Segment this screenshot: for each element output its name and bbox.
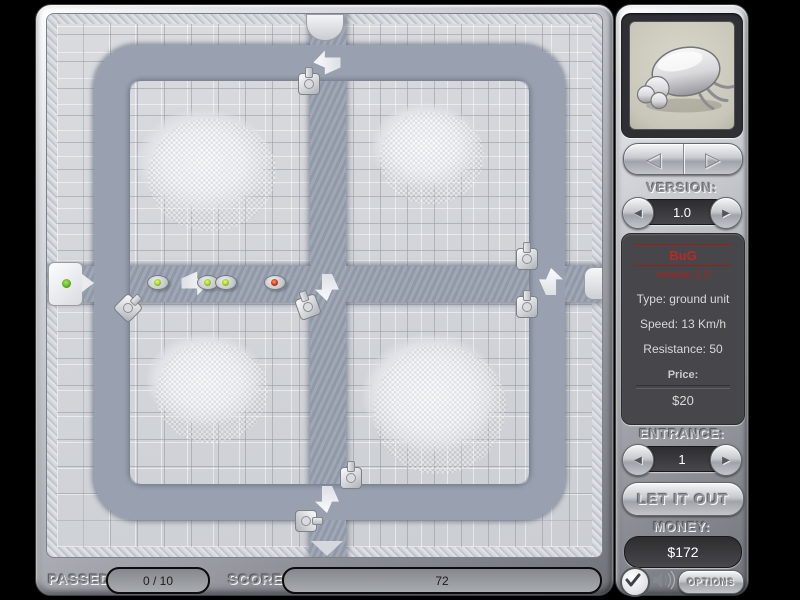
- money-text: $172: [667, 544, 698, 560]
- let-it-out-button[interactable]: LET IT OUT: [622, 482, 744, 516]
- unit-name: BuG: [622, 248, 744, 263]
- price-label: Price:: [622, 369, 744, 381]
- passed-label: PASSED: [48, 571, 111, 587]
- entrance-selector: 1 ◀ ▶: [622, 443, 742, 475]
- turret[interactable]: [295, 510, 317, 532]
- bug-dot: [204, 279, 211, 286]
- unit-portrait-frame: [621, 13, 743, 138]
- version-label: VERSION:: [616, 180, 748, 195]
- passed-text: 0 / 10: [143, 574, 173, 588]
- score-text: 72: [435, 574, 448, 588]
- money-value: $172: [624, 536, 742, 568]
- turret[interactable]: [516, 296, 538, 318]
- entrance-previous-button[interactable]: ◀: [622, 444, 654, 476]
- control-panel: ◁ ▷ VERSION: 1.0 ◀ ▶ BuG version 1.0 Typ…: [615, 4, 749, 596]
- turret[interactable]: [340, 467, 362, 489]
- game-board[interactable]: [46, 13, 603, 558]
- entrance-marker-left: [48, 262, 83, 306]
- money-label: MONEY:: [616, 519, 748, 534]
- turret[interactable]: [298, 73, 320, 95]
- turret[interactable]: [516, 248, 538, 270]
- unit-info-panel: BuG version 1.0 Type: ground unit Speed:…: [621, 233, 745, 425]
- passed-value: 0 / 10: [106, 567, 210, 594]
- bug-dot: [222, 279, 229, 286]
- beetle-image: [629, 21, 735, 130]
- beetle-illustration: [630, 22, 734, 129]
- price-value: $20: [622, 393, 744, 408]
- unit-speed: Speed: 13 Km/h: [622, 317, 744, 331]
- next-unit-button[interactable]: ▷: [683, 144, 743, 174]
- divider: [636, 385, 730, 389]
- entrance-light: [62, 279, 71, 288]
- version-down-button[interactable]: ◀: [622, 197, 654, 229]
- unit-version: version 1.0: [622, 269, 744, 281]
- version-selector: 1.0 ◀ ▶: [622, 196, 742, 228]
- version-up-button[interactable]: ▶: [710, 197, 742, 229]
- bug-green: [147, 275, 169, 290]
- bug-dot: [271, 279, 278, 286]
- check-icon[interactable]: [620, 567, 650, 597]
- unit-resistance: Resistance: 50: [622, 342, 744, 356]
- unit-type: Type: ground unit: [622, 292, 744, 306]
- bug-dot: [154, 279, 161, 286]
- score-label: SCORE: [228, 571, 283, 587]
- score-value: 72: [282, 567, 602, 594]
- divider: [634, 265, 732, 266]
- divider: [634, 244, 732, 245]
- speaker-icon[interactable]: [652, 569, 676, 591]
- bug-red: [264, 275, 286, 290]
- entrance-label: ENTRANCE:: [616, 426, 748, 441]
- options-button[interactable]: OPTIONS: [678, 570, 744, 594]
- version-text: 1.0: [673, 205, 691, 220]
- bug-green: [215, 275, 237, 290]
- previous-unit-button[interactable]: ◁: [624, 144, 683, 174]
- game-window-frame: PASSED 0 / 10 SCORE 72: [35, 4, 614, 596]
- entrance-text: 1: [678, 452, 685, 467]
- unit-browser: ◁ ▷: [623, 143, 743, 175]
- entrance-next-button[interactable]: ▶: [710, 444, 742, 476]
- exit-marker-right: [584, 267, 603, 300]
